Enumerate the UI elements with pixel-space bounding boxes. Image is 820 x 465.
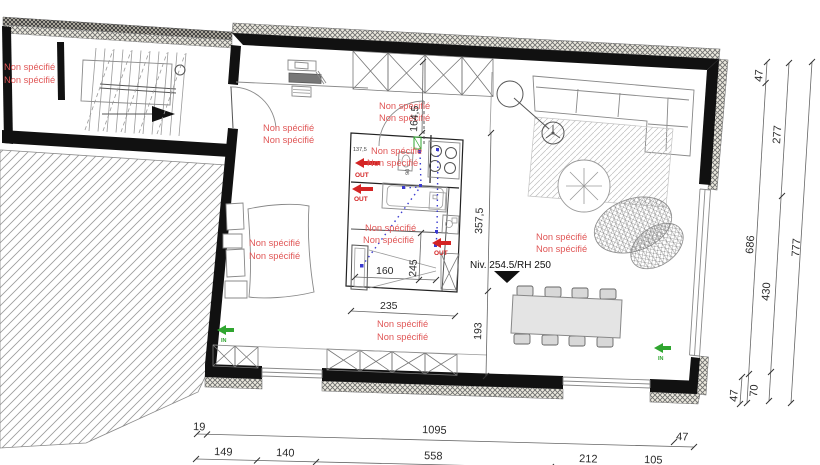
svg-text:430: 430 (760, 282, 773, 301)
svg-text:235: 235 (380, 300, 398, 312)
svg-text:686: 686 (744, 235, 757, 254)
svg-text:Non spécifié: Non spécifié (536, 244, 587, 254)
svg-text:IN: IN (221, 338, 227, 344)
svg-text:47: 47 (753, 69, 766, 82)
out-arrow-3: OUT (432, 238, 451, 257)
svg-text:Non spécifié: Non spécifié (363, 235, 414, 245)
desk (288, 60, 326, 97)
svg-text:245: 245 (407, 259, 420, 277)
svg-text:149: 149 (214, 446, 233, 459)
right-window (690, 189, 711, 356)
svg-text:Non spécifié: Non spécifié (536, 232, 587, 242)
terrain-hatch (0, 150, 226, 448)
svg-text:OUT: OUT (434, 250, 448, 257)
right-dimensions: 47 277 686 430 777 70 47 (728, 59, 815, 407)
svg-text:137,5: 137,5 (353, 147, 367, 153)
svg-text:Non spécifié: Non spécifié (4, 75, 55, 85)
svg-text:Non spécifié: Non spécifié (263, 135, 314, 145)
svg-text:19: 19 (193, 421, 206, 433)
level-marker: Niv. 254.5/RH 250 (470, 260, 551, 283)
svg-text:IN: IN (658, 356, 664, 362)
svg-text:OUT: OUT (354, 196, 368, 203)
svg-text:105: 105 (644, 454, 663, 465)
stove (428, 141, 460, 179)
svg-text:Non spécifié: Non spécifié (367, 158, 418, 168)
svg-text:Non spécifié: Non spécifié (371, 146, 422, 156)
svg-text:777: 777 (790, 238, 803, 257)
svg-text:193: 193 (472, 322, 485, 340)
svg-text:90: 90 (405, 169, 411, 175)
svg-text:Non spécifié: Non spécifié (365, 223, 416, 233)
svg-text:277: 277 (771, 125, 784, 144)
bottom-dimensions: 19 1095 47 149 140 558 212 105 (193, 421, 703, 465)
bottom-window-right (563, 377, 650, 388)
svg-text:1095: 1095 (422, 424, 447, 437)
stair-post (175, 65, 185, 75)
svg-text:357,5: 357,5 (473, 207, 486, 234)
svg-text:160: 160 (376, 265, 394, 277)
svg-text:140: 140 (276, 447, 295, 460)
in-arrow-right: IN (654, 343, 671, 362)
floor-plan[interactable]: Niv. 254.5/RH 250 OUT OUT OUT IN IN Non … (0, 0, 820, 465)
svg-text:Non spécifié: Non spécifié (249, 251, 300, 261)
svg-text:164,5: 164,5 (408, 105, 421, 132)
svg-text:Niv. 254.5/RH 250: Niv. 254.5/RH 250 (470, 260, 551, 271)
svg-text:Non spécifié: Non spécifié (4, 62, 55, 72)
svg-text:Non spécifié: Non spécifié (263, 123, 314, 133)
svg-text:Non spécifié: Non spécifié (377, 319, 428, 329)
svg-text:212: 212 (579, 453, 598, 465)
kitchen-sink (442, 215, 459, 234)
svg-text:558: 558 (424, 450, 443, 463)
interior-dimensions: 164,5 137,5 90 357,5 193 160 245 235 (348, 59, 494, 379)
svg-text:70: 70 (748, 384, 761, 397)
in-arrow-left: IN (217, 325, 234, 344)
stairwell (81, 48, 186, 136)
svg-text:47: 47 (728, 389, 741, 402)
svg-text:Non spécifié: Non spécifié (377, 332, 428, 342)
svg-text:Non spécifié: Non spécifié (249, 238, 300, 248)
dining-set (511, 286, 622, 347)
svg-text:OUT: OUT (355, 172, 369, 179)
dining-table (511, 295, 622, 338)
coffee-table (558, 160, 610, 212)
bottom-window-left (262, 368, 322, 378)
out-arrow-2: OUT (352, 184, 373, 203)
svg-text:47: 47 (676, 431, 689, 443)
